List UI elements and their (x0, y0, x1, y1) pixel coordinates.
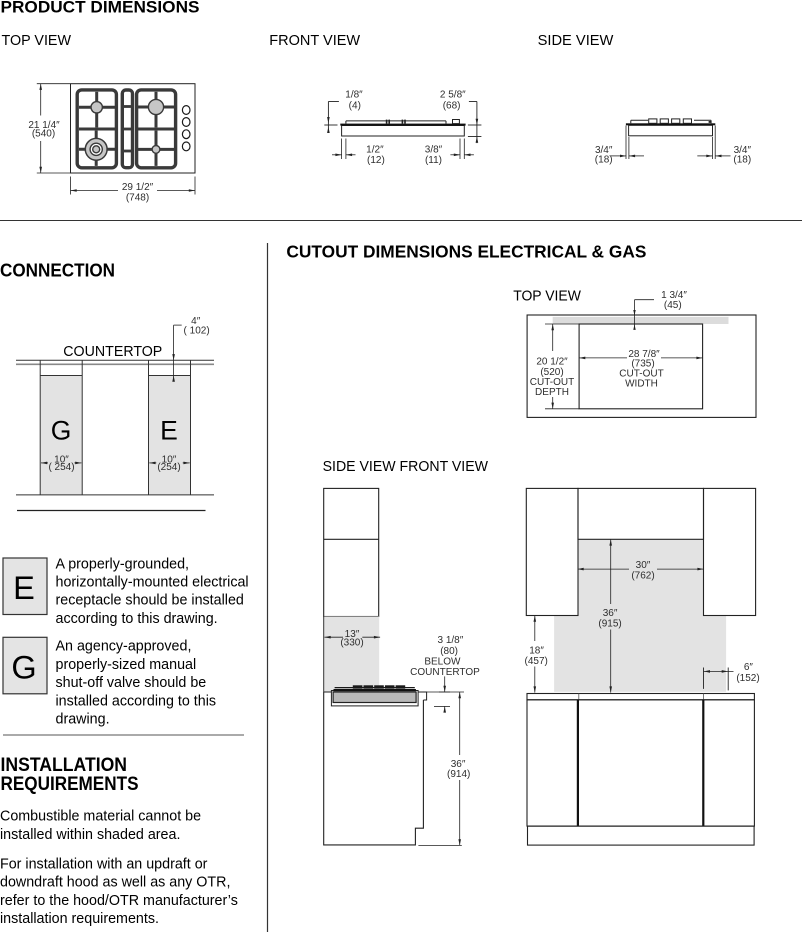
svg-text:(914): (914) (447, 769, 470, 780)
svg-text:(540): (540) (32, 129, 55, 140)
svg-text:shut-off valve should be: shut-off valve should be (56, 675, 207, 691)
svg-text:E: E (13, 570, 35, 606)
svg-text:30″: 30″ (636, 560, 651, 571)
svg-text:3 1/8″: 3 1/8″ (438, 635, 464, 646)
svg-text:3/8″: 3/8″ (425, 144, 443, 155)
svg-text:( 102): ( 102) (184, 325, 210, 336)
svg-text:6″: 6″ (744, 662, 754, 673)
svg-text:SIDE VIEW FRONT VIEW: SIDE VIEW FRONT VIEW (323, 458, 489, 475)
svg-text:(4): (4) (349, 101, 361, 112)
svg-text:drawing.: drawing. (56, 712, 110, 728)
svg-text:COUNTERTOP: COUNTERTOP (63, 343, 162, 360)
svg-text:A properly-grounded,: A properly-grounded, (56, 556, 190, 572)
svg-text:FRONT VIEW: FRONT VIEW (269, 32, 361, 49)
svg-text:An agency-approved,: An agency-approved, (56, 639, 192, 655)
svg-text:(330): (330) (340, 637, 363, 648)
svg-text:For installation with an updra: For installation with an updraft or (0, 856, 208, 872)
svg-text:G: G (11, 649, 36, 685)
svg-text:1/8″: 1/8″ (345, 90, 363, 101)
svg-text:installation requirements.: installation requirements. (0, 911, 159, 927)
svg-text:(45): (45) (664, 300, 682, 311)
svg-text:29 1/2″: 29 1/2″ (122, 182, 154, 193)
svg-text:(18): (18) (733, 155, 751, 166)
svg-text:COUNTERTOP: COUNTERTOP (410, 667, 480, 678)
svg-text:E: E (160, 416, 178, 446)
svg-text:(254): (254) (157, 462, 180, 473)
svg-text:G: G (51, 416, 72, 446)
svg-text:horizontally-mounted electrica: horizontally-mounted electrical (56, 575, 249, 591)
svg-text:according to this drawing.: according to this drawing. (56, 611, 218, 627)
svg-text:(915): (915) (598, 618, 621, 629)
svg-text:( 254): ( 254) (48, 462, 74, 473)
svg-text:SIDE VIEW: SIDE VIEW (538, 32, 615, 49)
svg-text:(18): (18) (595, 155, 613, 166)
svg-text:CUTOUT DIMENSIONS ELECTRICAL &: CUTOUT DIMENSIONS ELECTRICAL & GAS (286, 241, 646, 261)
svg-text:TOP VIEW: TOP VIEW (513, 288, 581, 305)
svg-text:CONNECTION: CONNECTION (0, 259, 115, 280)
svg-text:(762): (762) (631, 571, 654, 582)
svg-text:(11): (11) (425, 155, 442, 166)
svg-text:(152): (152) (736, 673, 759, 684)
svg-text:REQUIREMENTS: REQUIREMENTS (1, 774, 139, 795)
svg-text:installed within shaded area.: installed within shaded area. (0, 827, 180, 843)
svg-text:(457): (457) (525, 656, 548, 667)
svg-text:INSTALLATION: INSTALLATION (1, 755, 128, 776)
svg-text:(68): (68) (443, 101, 461, 112)
svg-text:20 1/2″: 20 1/2″ (536, 356, 568, 367)
svg-text:36″: 36″ (603, 608, 618, 619)
svg-text:2 5/8″: 2 5/8″ (440, 90, 466, 101)
svg-text:(80): (80) (440, 646, 458, 657)
svg-text:1/2″: 1/2″ (366, 144, 384, 155)
svg-text:properly-sized manual: properly-sized manual (56, 657, 197, 673)
svg-text:Combustible material cannot be: Combustible material cannot be (0, 809, 201, 825)
svg-text:PRODUCT DIMENSIONS: PRODUCT DIMENSIONS (1, 0, 200, 17)
svg-text:(12): (12) (367, 155, 385, 166)
svg-text:receptacle should be installed: receptacle should be installed (56, 593, 244, 609)
svg-text:TOP VIEW: TOP VIEW (2, 32, 72, 49)
svg-text:(748): (748) (126, 193, 149, 204)
svg-text:refer to the hood/OTR manufact: refer to the hood/OTR manufacturer’s (0, 893, 238, 909)
svg-text:downdraft hood as well as any: downdraft hood as well as any OTR, (0, 875, 230, 891)
svg-text:DEPTH: DEPTH (535, 387, 569, 398)
svg-text:WIDTH: WIDTH (625, 379, 658, 390)
svg-text:installed according to this: installed according to this (56, 693, 217, 709)
